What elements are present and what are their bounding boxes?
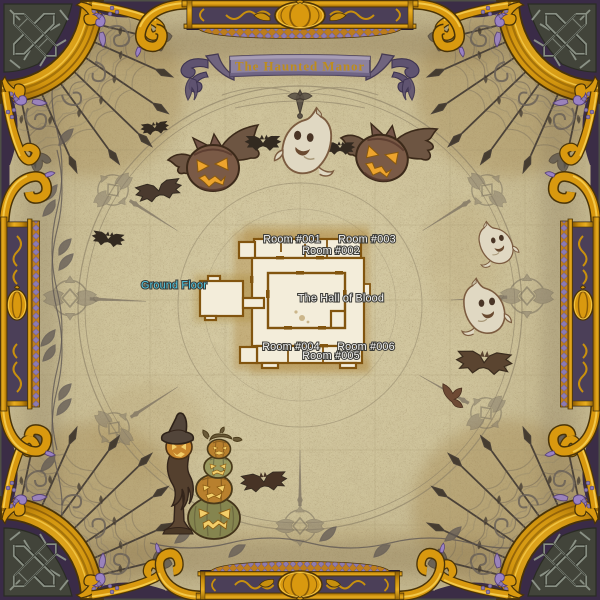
svg-text:The Haunted Manor: The Haunted Manor bbox=[235, 59, 365, 74]
svg-text:Room #003: Room #003 bbox=[338, 234, 396, 246]
svg-text:Room #001: Room #001 bbox=[263, 234, 321, 246]
svg-text:Room #005: Room #005 bbox=[302, 350, 360, 362]
svg-text:The Hall of Blood: The Hall of Blood bbox=[298, 293, 384, 305]
svg-text:Room #002: Room #002 bbox=[302, 245, 360, 257]
svg-text:Ground Floor: Ground Floor bbox=[141, 280, 207, 292]
